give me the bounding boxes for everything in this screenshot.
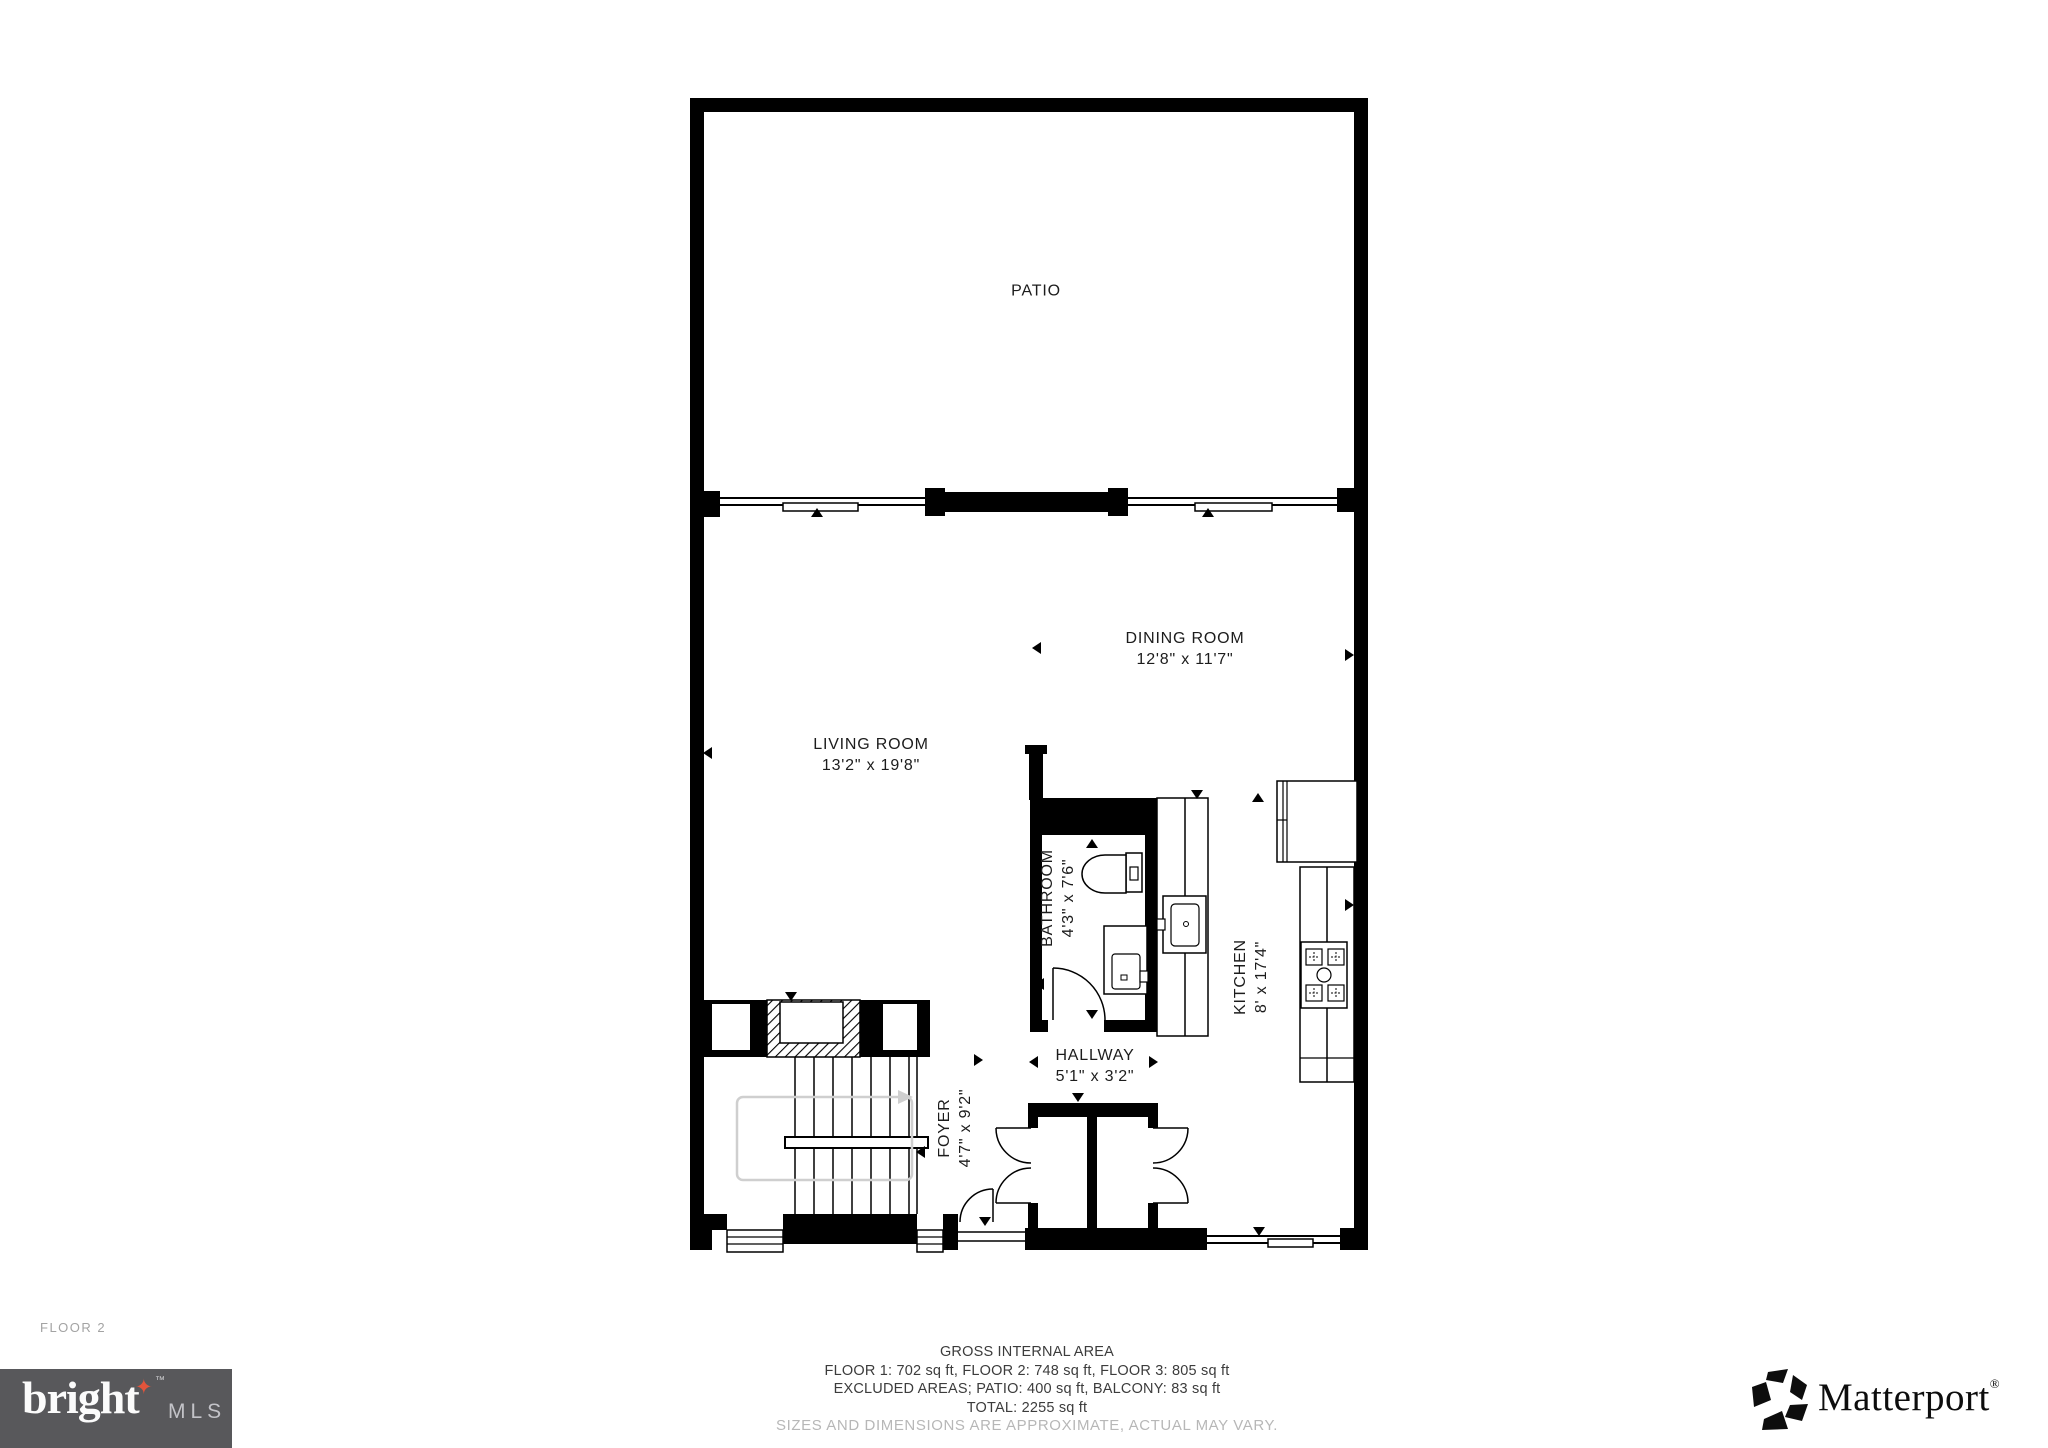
excluded-areas-line: EXCLUDED AREAS; PATIO: 400 sq ft, BALCON… xyxy=(677,1380,1377,1399)
room-label-patio: PATIO xyxy=(1011,281,1061,302)
kitchen-sink-icon xyxy=(1157,896,1206,953)
room-label-kitchen: KITCHEN 8' x 17'4" xyxy=(1230,939,1272,1015)
room-label-foyer: FOYER 4'7" x 9'2" xyxy=(934,1089,976,1168)
staircase xyxy=(785,1057,928,1214)
refrigerator-icon xyxy=(1277,781,1357,862)
patio-window-left xyxy=(719,498,925,511)
room-label-bathroom: BATHROOM 4'3" x 7'6" xyxy=(1037,849,1079,947)
trademark-symbol: ™ xyxy=(155,1375,165,1386)
bathroom-door xyxy=(1053,968,1105,1020)
closet-doors-right xyxy=(1153,1128,1188,1203)
patio-divider-wall xyxy=(702,488,1368,517)
fireplace xyxy=(700,1000,930,1057)
matterport-pinwheel-icon xyxy=(1750,1367,1810,1433)
closet-doors-left xyxy=(996,1128,1031,1203)
stove-icon xyxy=(1301,942,1347,1008)
stair-railing xyxy=(785,1137,928,1148)
bathroom-sink-icon xyxy=(1104,926,1148,994)
room-label-dining-room: DINING ROOM 12'8" x 11'7" xyxy=(1125,628,1244,670)
toilet-icon xyxy=(1082,853,1142,893)
stair-direction-path xyxy=(737,1090,913,1180)
bright-star-icon: ✦ xyxy=(135,1375,153,1400)
area-summary: GROSS INTERNAL AREA FLOOR 1: 702 sq ft, … xyxy=(677,1343,1377,1436)
registered-symbol: ® xyxy=(1990,1376,2000,1391)
disclaimer-line: SIZES AND DIMENSIONS ARE APPROXIMATE, AC… xyxy=(677,1417,1377,1436)
floorplan-page: PATIO DINING ROOM 12'8" x 11'7" LIVING R… xyxy=(0,0,2048,1448)
closet-walls xyxy=(1025,1103,1207,1250)
patio-window-right xyxy=(1128,498,1354,511)
exterior-walls xyxy=(690,98,1368,1250)
matterport-wordmark: Matterport® xyxy=(1818,1375,2000,1420)
floor-number-label: FLOOR 2 xyxy=(40,1320,106,1335)
floorplan-graphics xyxy=(0,0,2048,1448)
bright-wordmark: bright xyxy=(22,1371,139,1424)
room-label-hallway: HALLWAY 5'1" x 3'2" xyxy=(1055,1045,1134,1087)
bottom-right-window xyxy=(1207,1236,1347,1247)
bright-mls-logo: bright ✦ ™ MLS xyxy=(0,1369,232,1448)
total-area-line: TOTAL: 2255 sq ft xyxy=(677,1399,1377,1418)
front-door xyxy=(958,1189,1025,1241)
floor-areas-line: FLOOR 1: 702 sq ft, FLOOR 2: 748 sq ft, … xyxy=(677,1362,1377,1381)
room-label-living-room: LIVING ROOM 13'2" x 19'8" xyxy=(813,734,928,776)
mls-wordmark: MLS xyxy=(168,1400,226,1424)
gross-internal-area-title: GROSS INTERNAL AREA xyxy=(677,1343,1377,1362)
matterport-logo: Matterport® xyxy=(1748,1364,2048,1436)
